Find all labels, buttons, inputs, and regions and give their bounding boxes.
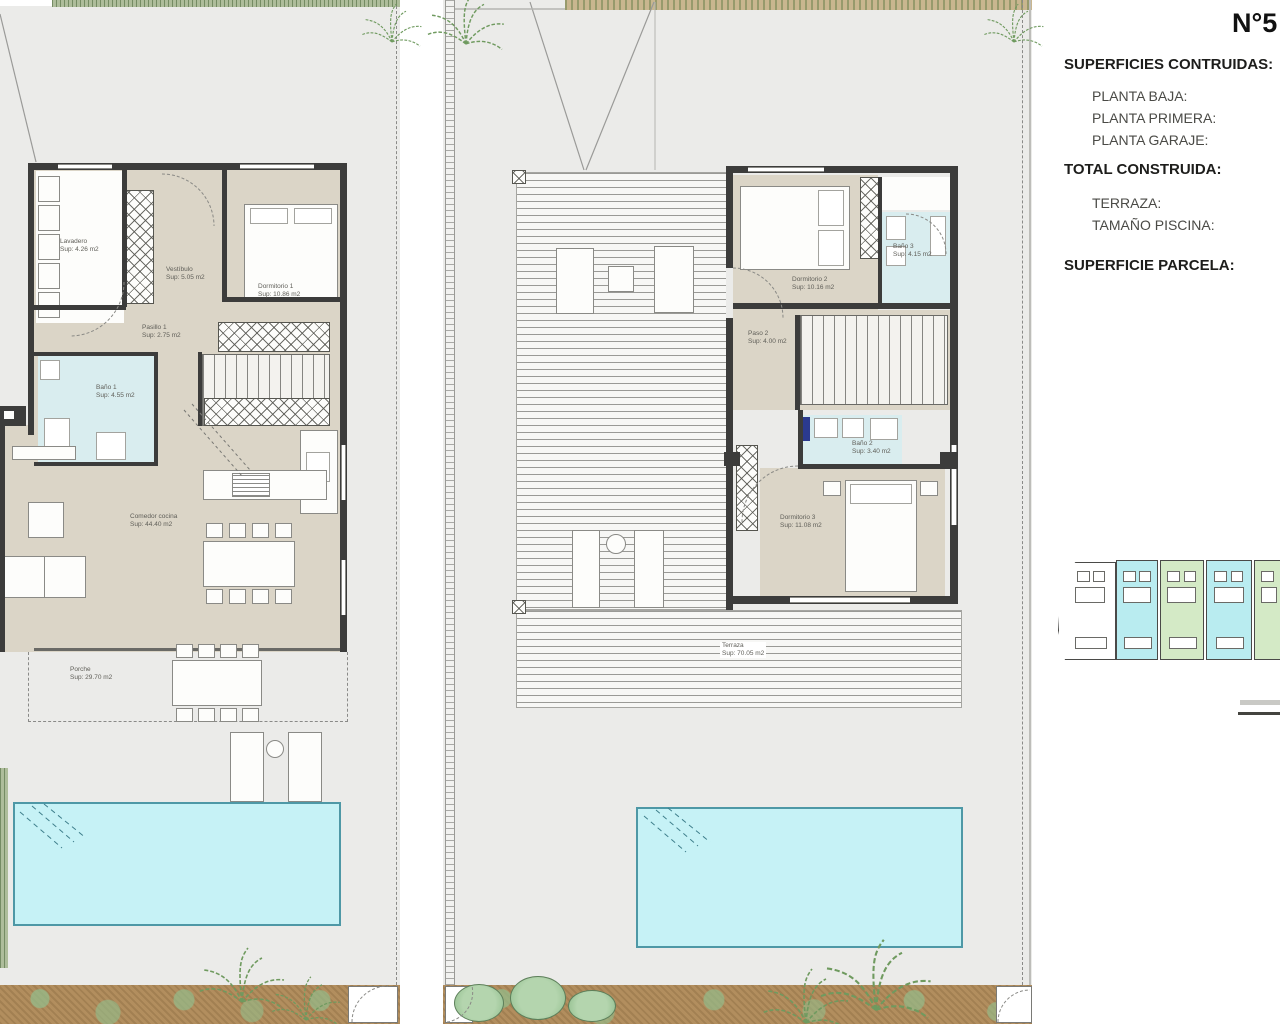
- room-area: Sup: 29.70 m2: [70, 674, 112, 682]
- plot-left-boundary-dashed: [395, 6, 397, 985]
- site-plan-unit-1: [1058, 562, 1116, 660]
- room-area: Sup: 10.86 m2: [258, 291, 300, 299]
- storage-appliance: [38, 263, 60, 289]
- chair: [198, 644, 215, 658]
- gf-wall-dorm1-left: [222, 169, 227, 300]
- sun-lounger: [230, 732, 264, 802]
- room-name: Terraza: [722, 642, 764, 650]
- garden-strip-left: [0, 985, 400, 1024]
- room-area: Sup: 4.55 m2: [96, 392, 135, 400]
- room-label-vestibulo: Vestíbulo Sup: 5.05 m2: [166, 266, 205, 282]
- panel-row-planta-primera: PLANTA PRIMERA:: [1092, 110, 1216, 126]
- garden-gate-right-plot-right: [996, 986, 1032, 1023]
- tree: [510, 976, 566, 1020]
- room-label-terraza: Terraza Sup: 70.05 m2: [720, 642, 766, 658]
- sink: [814, 418, 838, 438]
- sink: [96, 432, 126, 460]
- storage-appliance: [38, 234, 60, 260]
- toilet: [842, 418, 864, 438]
- ff-wall-dorm2-bottom: [733, 303, 958, 309]
- room-label-dormitorio1: Dormitorio 1 Sup: 10.86 m2: [258, 283, 300, 299]
- hedge-left-edge: [0, 768, 8, 968]
- deck-post: [512, 600, 526, 614]
- dining-table-porch: [172, 660, 262, 706]
- side-table-round: [266, 740, 284, 758]
- swimming-pool-right: [636, 807, 963, 948]
- panel-row-planta-baja: PLANTA BAJA:: [1092, 88, 1187, 104]
- room-label-pasillo1: Pasillo 1 Sup: 2.75 m2: [142, 324, 181, 340]
- outdoor-table: [608, 266, 634, 292]
- room-name: Paso 2: [748, 330, 787, 338]
- fence-right-plot-left: [445, 0, 455, 985]
- ff-wall-bano2-left: [798, 410, 803, 467]
- window: [341, 445, 346, 500]
- room-label-bano3: Baño 3 Sup: 4.15 m2: [893, 243, 932, 259]
- washer-appliance: [38, 176, 60, 202]
- chair: [176, 644, 193, 658]
- gf-wall-pasillo-top: [34, 305, 126, 310]
- tree: [454, 984, 504, 1022]
- gf-wall-left-upper: [28, 163, 34, 435]
- deck-post: [512, 170, 526, 184]
- toilet: [886, 216, 906, 240]
- pillow: [850, 484, 912, 504]
- chair: [252, 523, 269, 538]
- kitchen-tall-units: [204, 398, 330, 426]
- nightstand: [823, 481, 841, 496]
- ff-wall-post: [724, 452, 740, 466]
- chair: [198, 708, 215, 722]
- ff-wall-post: [940, 452, 958, 466]
- window: [341, 560, 346, 615]
- gf-wall-bano1-bottom: [34, 462, 158, 466]
- room-name: Porche: [70, 666, 112, 674]
- room-label-lavadero: Lavadero Sup: 4.26 m2: [60, 238, 99, 254]
- sun-lounger: [572, 530, 600, 608]
- nightstand: [920, 481, 938, 496]
- room-name: Pasillo 1: [142, 324, 181, 332]
- room-label-dormitorio2: Dormitorio 2 Sup: 10.16 m2: [792, 276, 834, 292]
- room-area: Sup: 10.16 m2: [792, 284, 834, 292]
- panel-row-terraza: TERRAZA:: [1092, 195, 1161, 211]
- chair: [242, 708, 259, 722]
- chair: [275, 523, 292, 538]
- room-name: Baño 1: [96, 384, 135, 392]
- ff-wall-left: [726, 166, 733, 610]
- tree: [568, 990, 616, 1022]
- ff-wall-bano3-left: [878, 177, 882, 309]
- dining-table-indoor: [203, 541, 295, 587]
- ff-wall-right: [950, 166, 958, 602]
- room-name: Lavadero: [60, 238, 99, 246]
- shower: [870, 418, 898, 440]
- gf-wall-bano1-top: [34, 352, 158, 356]
- plot-left-service-box: [0, 406, 26, 426]
- room-label-paso2: Paso 2 Sup: 4.00 m2: [748, 330, 787, 346]
- cooktop: [232, 473, 270, 497]
- tv-console: [12, 446, 76, 460]
- ff-wall-bano2-bottom: [798, 464, 958, 469]
- room-label-bano2: Baño 2 Sup: 3.40 m2: [852, 440, 891, 456]
- site-plan-scale-smudge: [1240, 700, 1280, 705]
- shower: [930, 216, 946, 256]
- chair: [220, 708, 237, 722]
- chair: [252, 589, 269, 604]
- terrace-deck-lower: [516, 610, 962, 708]
- pillow: [294, 208, 332, 224]
- room-name: Dormitorio 3: [780, 514, 822, 522]
- site-plan: [1056, 552, 1280, 664]
- room-label-comedor: Comedor cocina Sup: 44.40 m2: [130, 513, 177, 529]
- site-plan-unit-2: [1116, 560, 1158, 660]
- gf-wall-left-living: [0, 420, 5, 652]
- swimming-pool-left: [13, 802, 341, 926]
- site-plan-unit-5: [1254, 560, 1280, 660]
- room-area: Sup: 70.05 m2: [722, 650, 764, 658]
- sun-lounger: [288, 732, 322, 802]
- room-name: Dormitorio 2: [792, 276, 834, 284]
- chair: [242, 644, 259, 658]
- gf-wall-lavadero-divider: [122, 169, 127, 307]
- chair: [275, 589, 292, 604]
- chair: [229, 523, 246, 538]
- coffee-table: [28, 502, 64, 538]
- garden-gate-left-plot: [348, 986, 398, 1023]
- room-name: Comedor cocina: [130, 513, 177, 521]
- room-label-porche: Porche Sup: 29.70 m2: [70, 666, 112, 682]
- panel-row-parcela: SUPERFICIE PARCELA:: [1064, 257, 1235, 274]
- room-name: Dormitorio 1: [258, 283, 300, 291]
- wardrobe-hall: [126, 190, 154, 304]
- dryer-appliance: [38, 205, 60, 231]
- room-area: Sup: 4.00 m2: [748, 338, 787, 346]
- outdoor-seat: [654, 246, 694, 313]
- site-plan-unit-3: [1160, 560, 1204, 660]
- sofa: [2, 556, 86, 598]
- side-table-round: [606, 534, 626, 554]
- pillow: [818, 230, 844, 266]
- plot-right-boundary-line: [1029, 0, 1031, 985]
- meter-mark: [4, 411, 14, 419]
- room-name: Baño 2: [852, 440, 891, 448]
- gf-wall-stairs-left: [198, 352, 202, 426]
- panel-row-piscina: TAMAÑO PISCINA:: [1092, 217, 1215, 233]
- hedge-top-left-plot: [52, 0, 400, 7]
- window: [240, 164, 314, 169]
- chair: [176, 708, 193, 722]
- room-area: Sup: 2.75 m2: [142, 332, 181, 340]
- room-area: Sup: 4.26 m2: [60, 246, 99, 254]
- room-area: Sup: 44.40 m2: [130, 521, 177, 529]
- sun-lounger: [634, 530, 664, 608]
- room-area: Sup: 4.15 m2: [893, 251, 932, 259]
- ff-door-opening: [726, 268, 733, 318]
- ff-vestibule-bano3: [882, 177, 950, 210]
- site-plan-scale-bar: [1238, 712, 1280, 715]
- panel-row-total: TOTAL CONSTRUIDA:: [1064, 161, 1222, 178]
- hedge-top-right-plot: [565, 0, 1032, 10]
- room-name: Vestíbulo: [166, 266, 205, 274]
- staircase-first-floor: [800, 315, 948, 405]
- stair-storage: [218, 322, 330, 352]
- plot-right-boundary-dashed: [1021, 0, 1023, 985]
- shower: [40, 360, 60, 380]
- room-label-bano1: Baño 1 Sup: 4.55 m2: [96, 384, 135, 400]
- panel-row-planta-garaje: PLANTA GARAJE:: [1092, 132, 1208, 148]
- ff-wall-paso-stairs: [795, 315, 800, 410]
- window: [58, 164, 112, 169]
- window: [748, 167, 824, 172]
- chair: [206, 523, 223, 538]
- chair: [220, 644, 237, 658]
- chair: [206, 589, 223, 604]
- pillow: [250, 208, 288, 224]
- window: [790, 597, 910, 603]
- panel-title: SUPERFICIES CONTRUIDAS:: [1064, 56, 1273, 73]
- outdoor-seat: [556, 248, 594, 314]
- room-area: Sup: 3.40 m2: [852, 448, 891, 456]
- gf-wall-bano1-right: [154, 352, 158, 466]
- room-area: Sup: 11.08 m2: [780, 522, 822, 530]
- plan-number: N°5: [1232, 8, 1277, 39]
- pillow: [818, 190, 844, 226]
- room-name: Baño 3: [893, 243, 932, 251]
- chair: [229, 589, 246, 604]
- room-label-dormitorio3: Dormitorio 3 Sup: 11.08 m2: [780, 514, 822, 530]
- site-plan-unit-4: [1206, 560, 1252, 660]
- room-area: Sup: 5.05 m2: [166, 274, 205, 282]
- floorplan-sheet: Lavadero Sup: 4.26 m2 Vestíbulo Sup: 5.0…: [0, 0, 1280, 1024]
